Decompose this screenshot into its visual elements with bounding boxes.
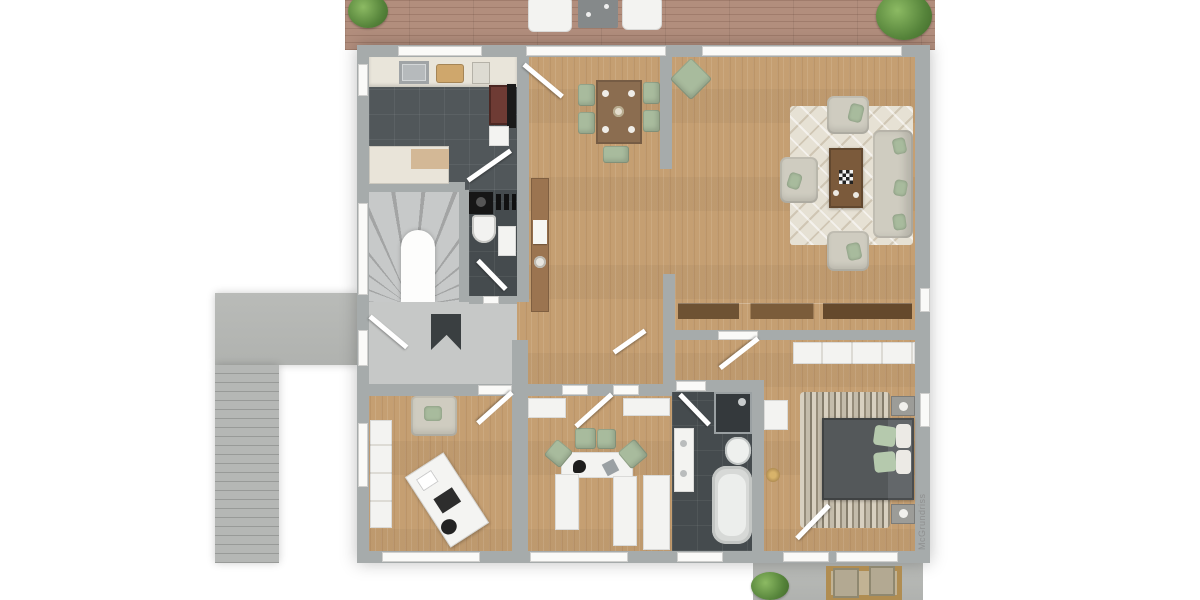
armchair <box>827 96 869 134</box>
bathtub <box>712 466 752 544</box>
washer-drum-icon <box>476 197 486 207</box>
cutting-board <box>436 64 464 83</box>
console-table <box>531 178 549 312</box>
dining-chair <box>578 84 595 106</box>
sofa <box>873 130 913 238</box>
window <box>836 552 898 562</box>
washbasin <box>498 226 516 256</box>
window <box>677 552 723 562</box>
window <box>358 203 368 295</box>
wall-wc-right <box>517 190 529 302</box>
double-bed <box>822 418 914 500</box>
oven-black-panel <box>507 84 516 128</box>
wall-dining-living-divider <box>660 57 672 169</box>
pillow-icon <box>845 242 862 262</box>
wall-wc-bottom <box>499 296 517 304</box>
walkway-landing <box>215 293 357 365</box>
phone-icon <box>573 460 586 473</box>
mug-icon <box>853 192 859 198</box>
window <box>398 46 482 56</box>
plate-icon <box>628 126 635 133</box>
kitchen-cabinet <box>489 126 509 146</box>
pillow-icon <box>892 213 907 231</box>
pillow-icon <box>891 137 907 155</box>
window <box>382 552 480 562</box>
nightstand <box>891 396 915 416</box>
toilet <box>725 437 751 465</box>
pillow-icon <box>893 179 909 197</box>
cup-icon <box>586 12 591 17</box>
mug-icon <box>833 190 839 196</box>
faucet-icon <box>680 440 687 447</box>
stove-icon <box>472 62 490 84</box>
sun-lounger <box>622 0 662 30</box>
window <box>702 46 902 56</box>
wall-stairs-wc <box>459 190 469 302</box>
plate-icon <box>628 90 635 97</box>
sun-lounger <box>528 0 572 32</box>
window <box>530 552 628 562</box>
wall-living-bottom <box>672 330 915 340</box>
staircase <box>369 192 461 302</box>
window <box>358 423 368 487</box>
paper-icon <box>416 470 439 492</box>
nook-cabinet <box>528 398 566 418</box>
decor-bowl-icon <box>534 256 546 268</box>
desk-chair-icon <box>438 516 460 537</box>
dining-chair <box>578 112 595 134</box>
island-wood-top <box>411 149 449 169</box>
dining-chair <box>643 110 660 132</box>
wc-shelf-slats <box>496 194 516 210</box>
outdoor-chair <box>833 568 859 598</box>
coffee-table <box>829 148 863 208</box>
bathroom-vanity <box>674 428 694 492</box>
pillow-icon <box>873 425 898 448</box>
pillow-icon <box>847 103 865 124</box>
sideboard <box>678 303 912 319</box>
door-opening <box>613 385 639 395</box>
door-opening <box>483 296 499 304</box>
pillow-icon <box>873 451 897 473</box>
candles-icon <box>766 468 780 482</box>
exterior-steps <box>215 365 279 563</box>
nook-tall-cabinet <box>643 475 670 550</box>
window <box>358 64 368 96</box>
tub-basin-icon <box>718 474 746 536</box>
pillow-icon <box>786 171 803 190</box>
pillow-icon <box>896 450 911 474</box>
toilet <box>472 215 496 243</box>
door-opening <box>562 385 588 395</box>
plate-icon <box>602 90 609 97</box>
window <box>920 393 930 427</box>
armchair <box>780 157 818 203</box>
window <box>920 288 930 312</box>
wall-nook-top <box>528 384 672 396</box>
nook-chair <box>575 428 596 449</box>
pillow-icon <box>424 406 442 421</box>
office-armchair <box>411 396 457 436</box>
bedroom-dresser <box>764 400 788 430</box>
laptop-icon <box>433 487 461 513</box>
plate-icon <box>602 126 609 133</box>
lamp-icon <box>899 402 908 411</box>
console-papers <box>533 220 547 244</box>
nook-cabinet <box>623 398 670 416</box>
armchair <box>827 231 869 271</box>
bedroom-wardrobe <box>793 342 915 364</box>
front-door-threshold <box>358 330 368 366</box>
u-desk-right-leg <box>613 476 637 546</box>
lamp-icon <box>899 509 908 518</box>
wall-office-right <box>512 340 528 551</box>
u-desk-left-leg <box>555 474 579 530</box>
patio-door-threshold <box>526 46 666 56</box>
office-wardrobe <box>370 420 392 528</box>
floor-plan-canvas: McGrundriss <box>0 0 1200 600</box>
dining-table <box>596 80 642 144</box>
bush-icon <box>751 572 789 600</box>
arched-niche <box>401 230 435 302</box>
chessboard-icon <box>839 170 853 184</box>
shower-head-icon <box>738 398 746 406</box>
pillow-icon <box>896 424 911 448</box>
wall-bathroom-right <box>752 380 764 551</box>
outdoor-chair <box>869 566 895 596</box>
kitchen-sink <box>399 61 429 84</box>
wall-wc-bottom <box>469 296 483 304</box>
faucet-icon <box>680 470 687 477</box>
centerpiece-icon <box>613 106 624 117</box>
shower <box>714 392 752 434</box>
dining-chair <box>643 82 660 104</box>
cup-icon <box>604 4 609 9</box>
watermark-text: McGrundriss <box>917 480 927 550</box>
nook-chair <box>597 429 616 449</box>
nightstand <box>891 504 915 524</box>
dining-chair <box>603 146 629 163</box>
door-opening <box>676 381 706 391</box>
washing-machine <box>469 192 493 214</box>
deck-side-table <box>578 0 618 28</box>
window <box>783 552 829 562</box>
